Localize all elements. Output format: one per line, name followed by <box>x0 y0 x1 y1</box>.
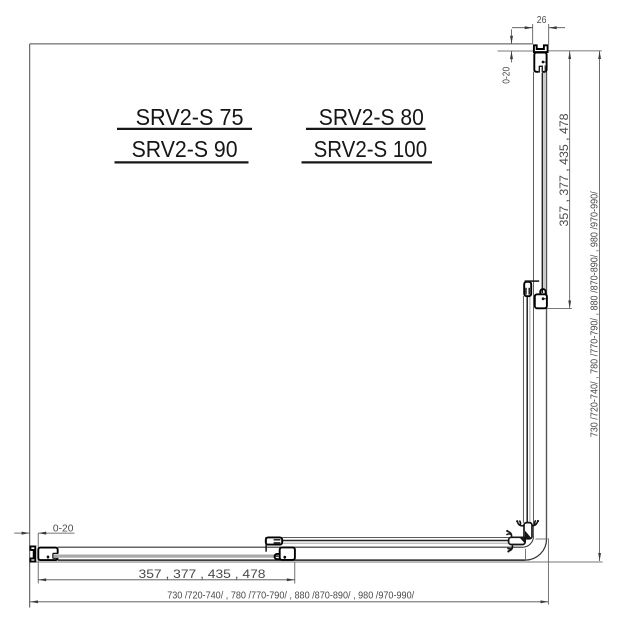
svg-text:SRV2-S 90: SRV2-S 90 <box>132 136 238 162</box>
svg-text:357 , 377 , 435 , 478: 357 , 377 , 435 , 478 <box>139 567 266 581</box>
svg-text:0-20: 0-20 <box>53 522 74 534</box>
svg-text:0-20: 0-20 <box>500 67 512 84</box>
svg-text:357 , 377 , 435 , 478: 357 , 377 , 435 , 478 <box>557 113 571 226</box>
svg-text:SRV2-S 80: SRV2-S 80 <box>319 104 424 130</box>
svg-text:SRV2-S 75: SRV2-S 75 <box>136 104 244 130</box>
svg-text:730 /720-740/ , 780 /770-790/: 730 /720-740/ , 780 /770-790/ , 880 /870… <box>167 589 414 601</box>
svg-text:SRV2-S 100: SRV2-S 100 <box>314 136 428 162</box>
svg-text:730 /720-740/ , 780 /770-790/: 730 /720-740/ , 780 /770-790/ , 880 /870… <box>588 191 600 437</box>
svg-text:26: 26 <box>537 14 547 26</box>
